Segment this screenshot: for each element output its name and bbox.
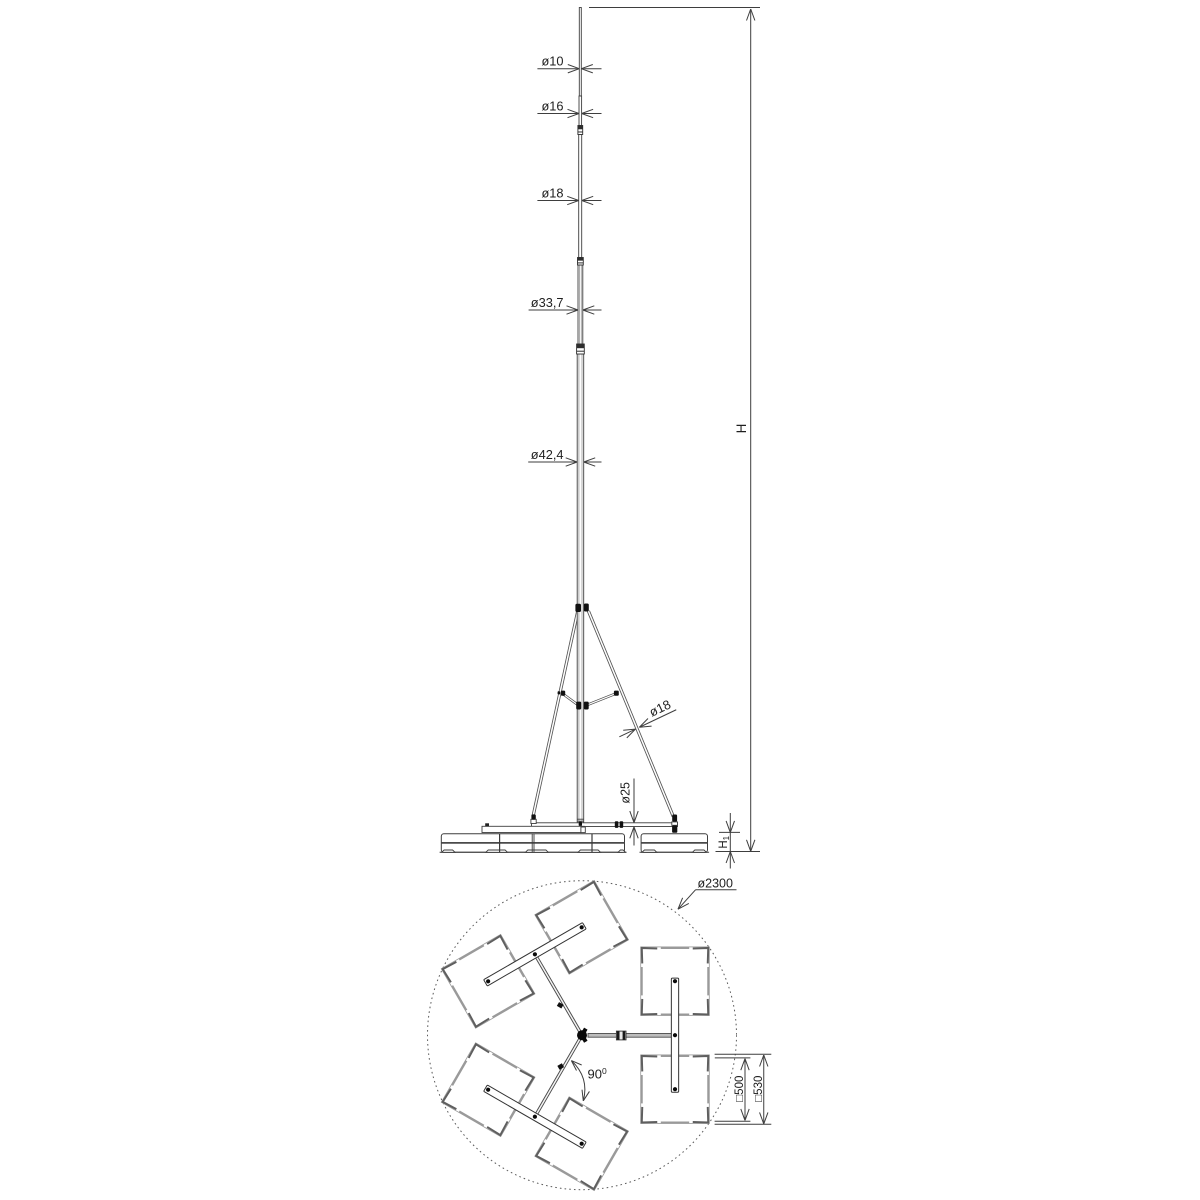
svg-text:ø42,4: ø42,4 (531, 447, 564, 462)
svg-text:□500: □500 (734, 1076, 746, 1102)
svg-text:ø16: ø16 (541, 99, 563, 114)
svg-text:ø2300: ø2300 (698, 877, 733, 891)
svg-text:ø18: ø18 (541, 186, 563, 201)
svg-text:ø10: ø10 (541, 54, 563, 69)
svg-text:ø25: ø25 (619, 782, 633, 804)
svg-text:ø33,7: ø33,7 (531, 295, 564, 310)
svg-text:□530: □530 (753, 1076, 765, 1102)
svg-text:H: H (734, 424, 749, 434)
